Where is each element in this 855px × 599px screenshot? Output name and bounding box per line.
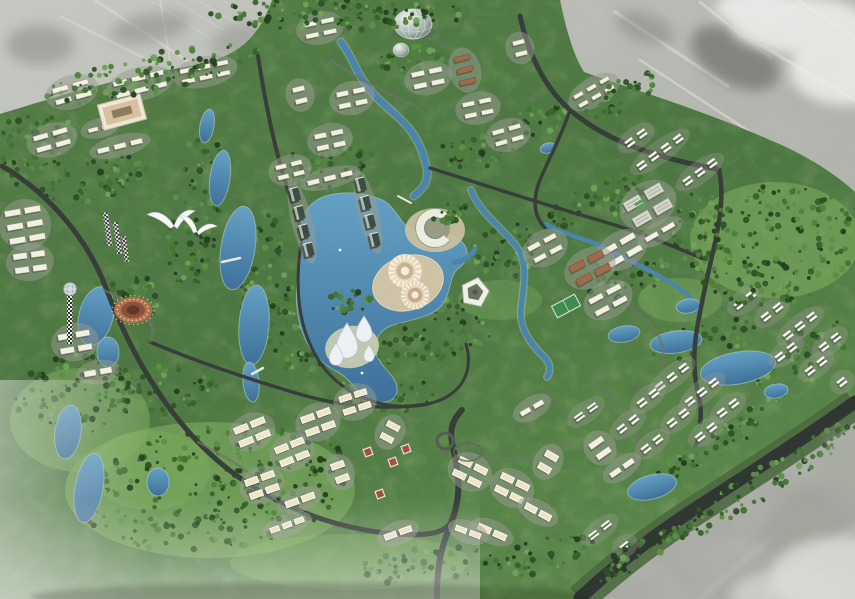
atmosphere — [0, 0, 855, 599]
masterplan-rendering — [0, 0, 855, 599]
film-grain — [0, 0, 855, 599]
aerial-scene — [0, 0, 855, 599]
